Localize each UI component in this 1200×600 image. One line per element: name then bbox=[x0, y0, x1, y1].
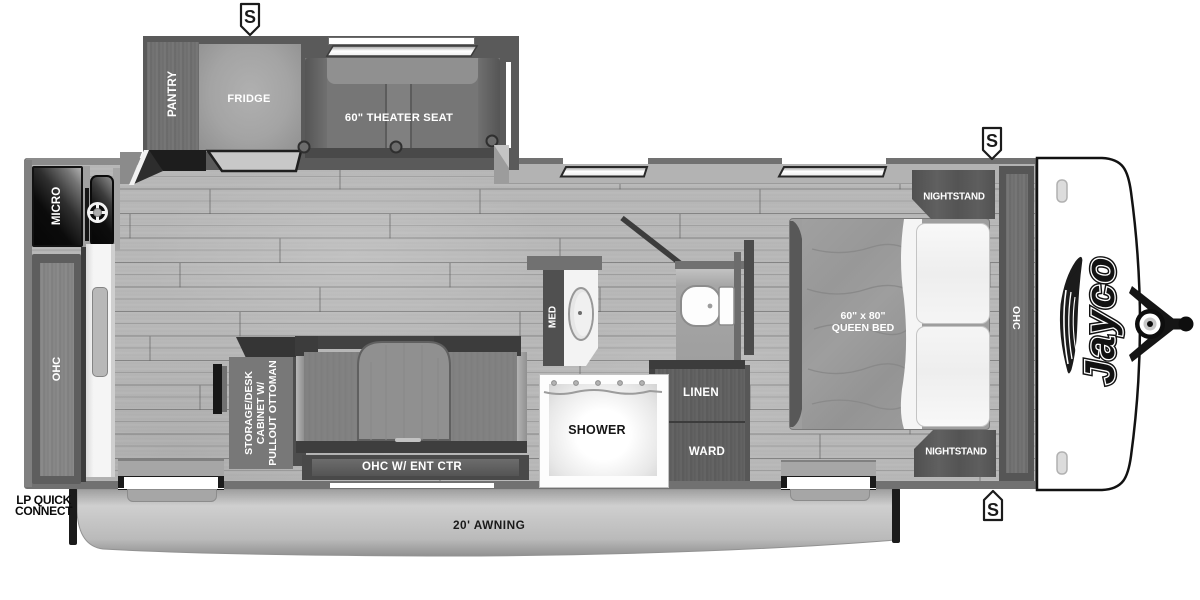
svg-text:S: S bbox=[986, 131, 998, 151]
svg-text:Jayco: Jayco bbox=[1076, 255, 1123, 384]
svg-text:S: S bbox=[244, 7, 256, 27]
svg-text:S: S bbox=[987, 500, 999, 520]
